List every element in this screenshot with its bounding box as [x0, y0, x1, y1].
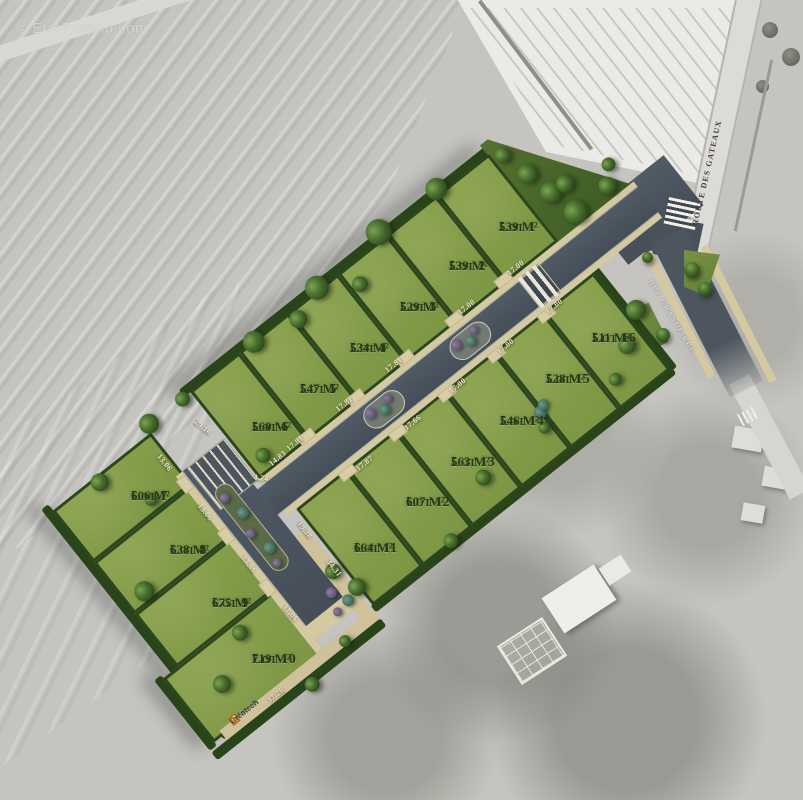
tree-icon	[762, 22, 778, 38]
aerial-house	[741, 502, 766, 524]
site-plan-image: ROUTE DES GATEAUX RUE GRANDE RUE	[0, 0, 803, 800]
dimension-label: 4.24	[253, 472, 269, 483]
tree-icon	[642, 252, 653, 263]
tree-icon	[782, 48, 800, 66]
watermark: © EtreProprio.com	[16, 20, 148, 37]
tree-icon	[698, 282, 712, 296]
tree-icon	[656, 328, 670, 342]
tree-icon	[684, 262, 700, 278]
